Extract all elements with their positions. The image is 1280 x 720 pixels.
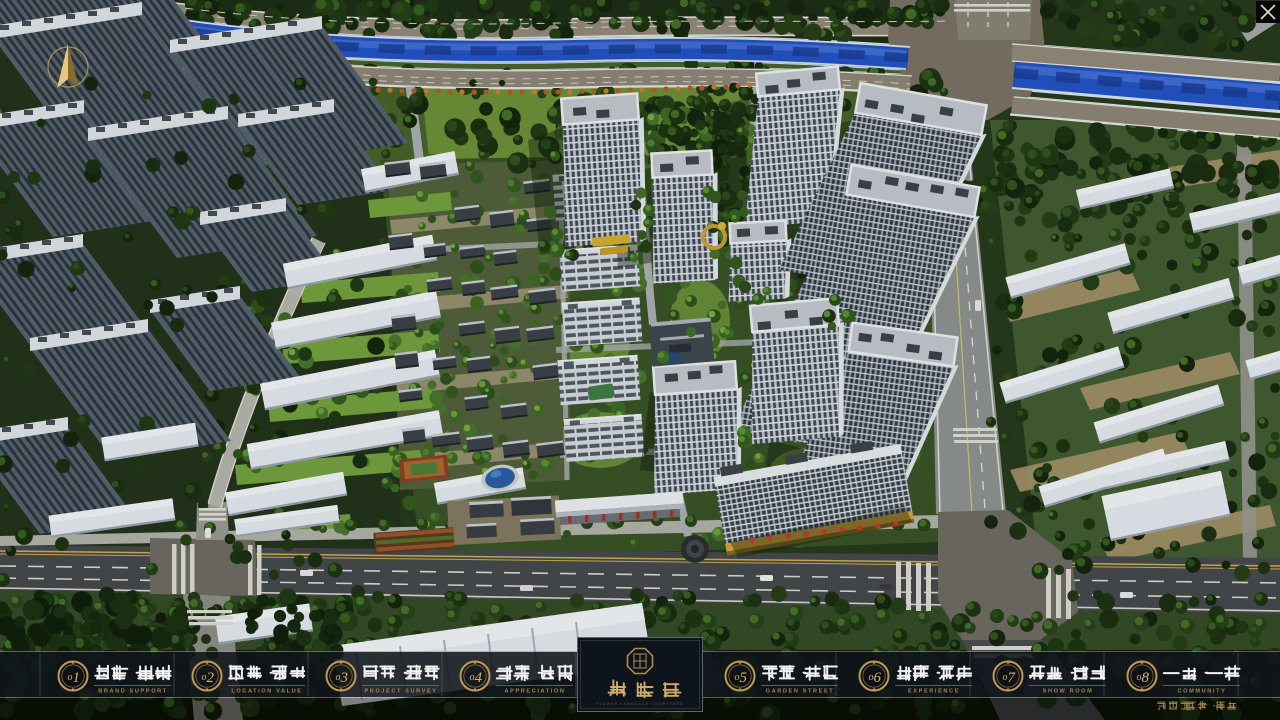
svg-text:SHOW ROOM: SHOW ROOM — [1043, 689, 1094, 695]
svg-text:6: 6 — [874, 670, 882, 686]
svg-text:8: 8 — [1142, 670, 1150, 686]
svg-text:3: 3 — [340, 670, 349, 686]
svg-text:APPRECIATION: APPRECIATION — [504, 689, 565, 695]
svg-text:COMMUNITY: COMMUNITY — [1178, 689, 1227, 695]
svg-text:BRAND SUPPORT: BRAND SUPPORT — [98, 689, 168, 695]
svg-text:2: 2 — [207, 670, 215, 686]
svg-text:LOCATION VALUE: LOCATION VALUE — [231, 689, 302, 695]
svg-text:1: 1 — [73, 670, 81, 686]
svg-text:4: 4 — [475, 670, 483, 686]
svg-text:5: 5 — [740, 670, 748, 686]
svg-text:EXPERIENCE: EXPERIENCE — [908, 689, 960, 695]
svg-text:FLOWER LANGUAGE COURTYARD: FLOWER LANGUAGE COURTYARD — [596, 702, 683, 706]
svg-text:GARDEN STREET: GARDEN STREET — [766, 689, 835, 695]
svg-text:PROJECT SURVEY: PROJECT SURVEY — [364, 689, 437, 695]
